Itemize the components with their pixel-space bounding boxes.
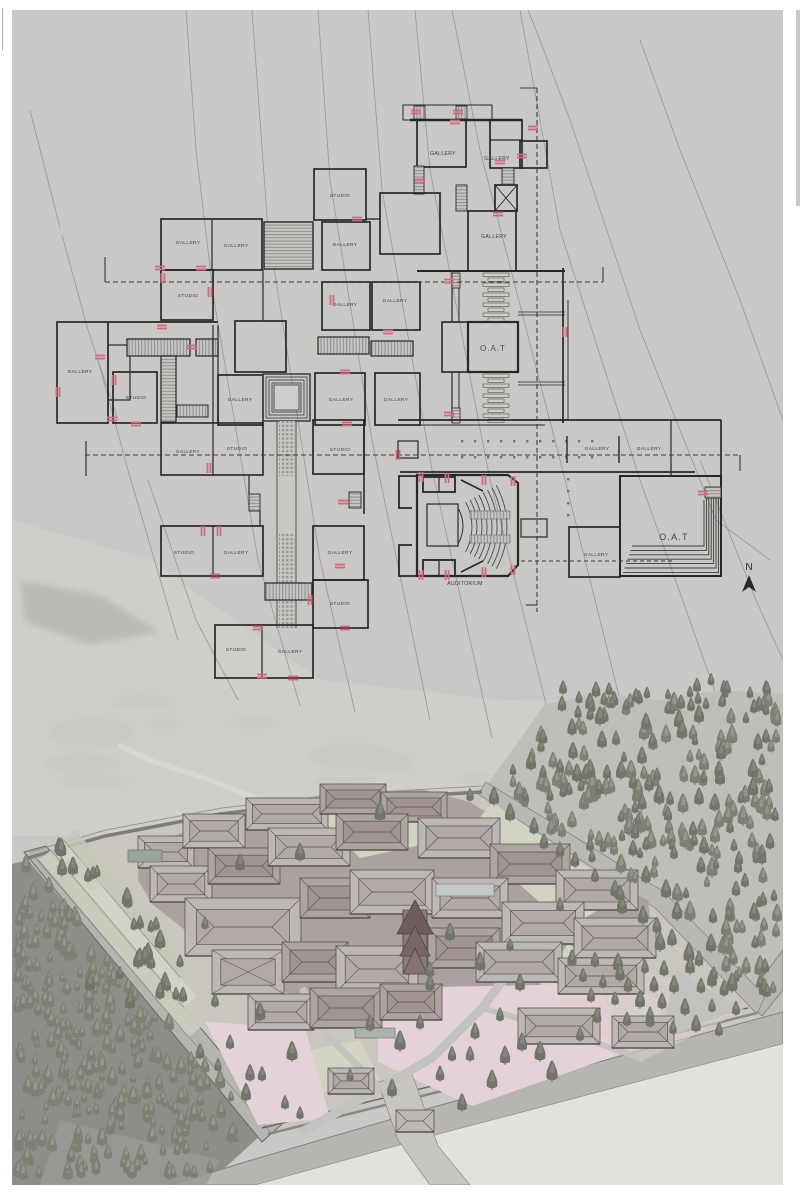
svg-text:N: N xyxy=(745,562,752,573)
svg-text:GALLERY: GALLERY xyxy=(278,649,303,655)
svg-text:GALLERY: GALLERY xyxy=(228,397,253,403)
svg-text:GALLERY: GALLERY xyxy=(430,151,456,157)
svg-text:GALLERY: GALLERY xyxy=(176,240,201,246)
svg-text:GALLERY: GALLERY xyxy=(224,550,249,556)
svg-text:GALLERY: GALLERY xyxy=(333,242,358,248)
svg-text:STUDIO: STUDIO xyxy=(126,395,147,401)
svg-text:GALLERY: GALLERY xyxy=(637,446,662,452)
svg-text:GALLERY: GALLERY xyxy=(481,234,507,240)
svg-text:STUDIO: STUDIO xyxy=(174,550,195,556)
svg-text:GALLERY: GALLERY xyxy=(224,243,249,249)
svg-text:GALLERY: GALLERY xyxy=(585,446,610,452)
svg-text:GALLERY: GALLERY xyxy=(333,302,358,308)
svg-text:STUDIO: STUDIO xyxy=(330,601,351,607)
svg-text:GALLERY: GALLERY xyxy=(68,369,93,375)
svg-text:GALLERY: GALLERY xyxy=(383,298,408,304)
svg-text:STUDIO: STUDIO xyxy=(330,447,351,453)
svg-text:GALLERY: GALLERY xyxy=(584,552,609,558)
svg-text:O.A.T: O.A.T xyxy=(659,532,689,542)
svg-text:STUDIO: STUDIO xyxy=(227,446,248,452)
svg-text:STUDIO: STUDIO xyxy=(330,193,351,199)
svg-text:GALLERY: GALLERY xyxy=(384,397,409,403)
svg-text:STUDIO: STUDIO xyxy=(226,647,247,653)
svg-text:AUDITORIUM: AUDITORIUM xyxy=(447,581,483,587)
svg-text:O.A.T: O.A.T xyxy=(480,344,506,353)
svg-text:GALLERY: GALLERY xyxy=(176,449,200,454)
svg-text:STUDIO: STUDIO xyxy=(178,293,199,299)
svg-text:GALLERY: GALLERY xyxy=(328,550,353,556)
svg-text:GALLERY: GALLERY xyxy=(329,397,354,403)
